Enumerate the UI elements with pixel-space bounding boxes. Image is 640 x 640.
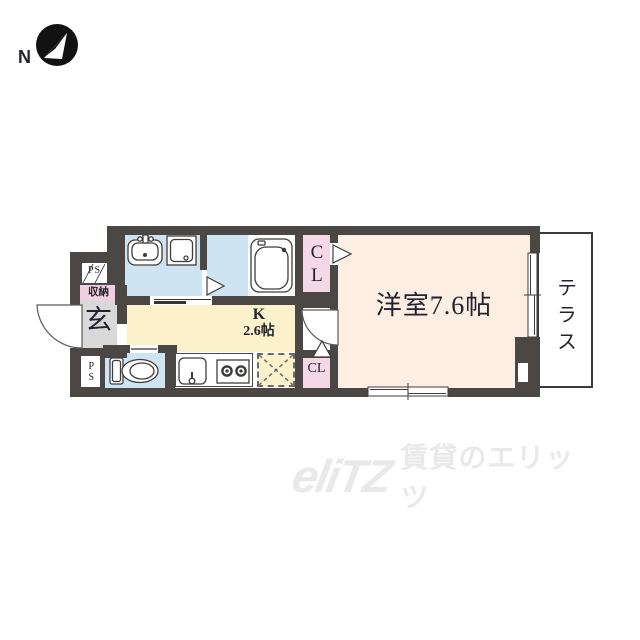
closet-lower-label: CL (303, 362, 330, 377)
pipe-space-upper-label: PS (82, 266, 107, 277)
washbasin-icon (128, 235, 162, 265)
kitchen-size-label: 2.6帖 (228, 325, 290, 340)
refrigerator-x-icon (259, 355, 293, 385)
entrance-label: 玄 (80, 306, 117, 334)
kitchen-label: K (228, 307, 290, 324)
washroom-sliding-door (150, 296, 212, 305)
toilet-door (130, 345, 158, 353)
compass-label: N (18, 48, 31, 67)
gas-stove-icon (217, 360, 249, 383)
room-door-arc (302, 310, 338, 345)
compass-icon (36, 24, 78, 66)
washing-machine-pan-icon (167, 236, 196, 265)
window-bottom (368, 383, 448, 400)
pipe-space-lower-label: PS (81, 357, 100, 387)
toilet-icon (110, 358, 158, 384)
closet-upper-door-icon (333, 245, 351, 263)
western-room-label: 洋室7.6帖 (338, 292, 530, 319)
terrace-label: テラス (537, 262, 591, 372)
bathroom-door-icon (207, 277, 224, 295)
kitchen-sink-icon (179, 358, 206, 384)
storage-label: 収納 (80, 287, 117, 298)
closet-upper-label: CL (303, 240, 330, 290)
floorplan-image: N 洋室7.6帖 K 2.6帖 CL CL 収納 玄 PS PS テラス eli… (0, 0, 640, 640)
entrance-door-arc (37, 305, 82, 348)
bathtub-icon (251, 239, 292, 292)
